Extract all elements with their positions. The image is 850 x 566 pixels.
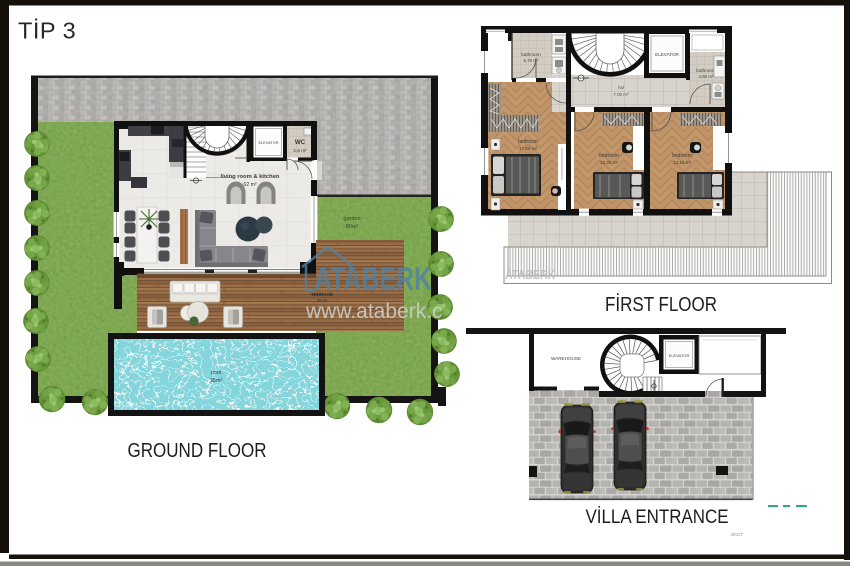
svg-text:ATABERK: ATABERK (505, 268, 556, 282)
svg-text:www.ataberk.c: www.ataberk.c (305, 300, 443, 323)
svg-text:bathroom: bathroom (521, 52, 541, 57)
svg-text:VİLLA ENTRANCE: VİLLA ENTRANCE (586, 505, 729, 528)
svg-text:80m²: 80m² (346, 224, 359, 230)
svg-text:hal: hal (618, 85, 624, 90)
svg-text:ATABERK: ATABERK (314, 261, 432, 298)
svg-text:bedroom: bedroom (518, 139, 538, 145)
svg-text:17,00 m²: 17,00 m² (519, 146, 538, 151)
svg-text:13,10 m²: 13,10 m² (673, 160, 692, 165)
svg-text:living room & kitchen: living room & kitchen (221, 174, 280, 180)
svg-text:2,6 m²: 2,6 m² (293, 148, 307, 154)
svg-text:ELEVATOR: ELEVATOR (258, 140, 278, 145)
svg-text:ELEVATOR: ELEVATOR (655, 52, 679, 57)
svg-text:5,70 m²: 5,70 m² (524, 58, 539, 63)
svg-text:garden: garden (343, 216, 360, 222)
svg-text:bedroom: bedroom (599, 153, 619, 159)
svg-text:GKCT: GKCT (731, 532, 744, 537)
svg-text:pool: pool (211, 370, 221, 376)
svg-text:7,00 m²: 7,00 m² (614, 92, 629, 97)
svg-text:bedroom: bedroom (672, 153, 692, 159)
svg-text:35m²: 35m² (210, 378, 223, 384)
svg-text:62 m²: 62 m² (243, 182, 257, 188)
svg-text:GROUND FLOOR: GROUND FLOOR (128, 440, 267, 462)
svg-text:FİRST FLOOR: FİRST FLOOR (605, 293, 717, 316)
svg-text:TİP 3: TİP 3 (18, 18, 76, 44)
svg-text:WAREHOUSE: WAREHOUSE (551, 356, 581, 361)
svg-text:ELEVATOR: ELEVATOR (669, 353, 690, 358)
svg-text:bathroom: bathroom (696, 68, 716, 73)
svg-text:4,50 m²: 4,50 m² (699, 74, 714, 79)
svg-text:WC: WC (295, 139, 306, 146)
svg-text:12,30 m²: 12,30 m² (600, 160, 619, 165)
